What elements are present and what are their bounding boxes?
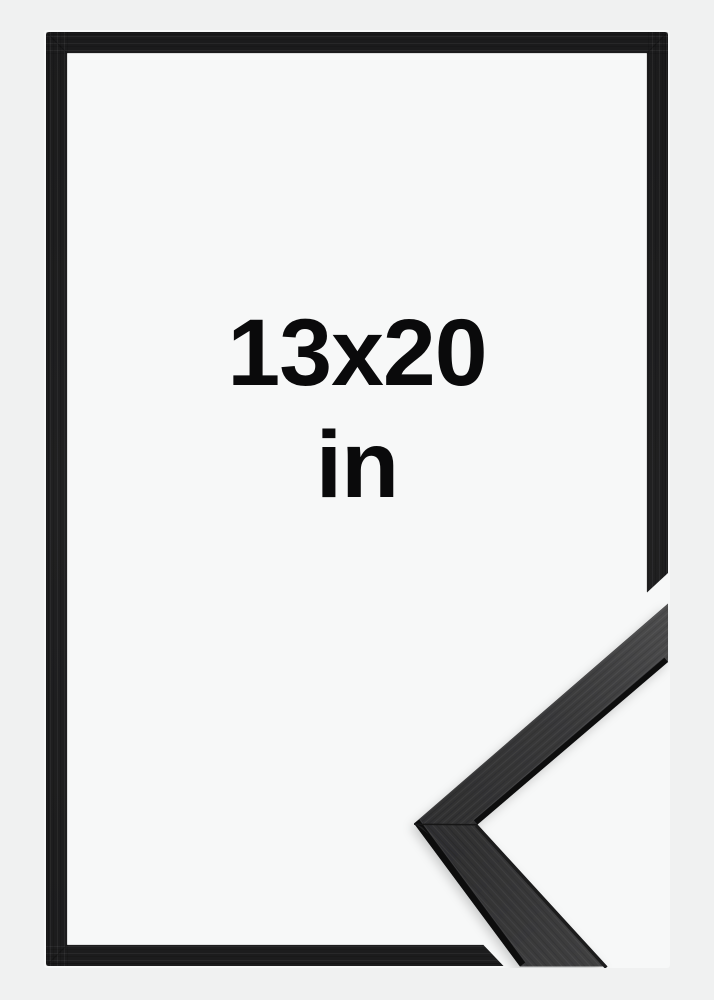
photo-background: [44, 30, 670, 968]
product-image[interactable]: 13x20 in: [0, 0, 714, 1000]
frame-photo: [0, 0, 714, 1000]
profile-miter-seam: [414, 824, 478, 825]
